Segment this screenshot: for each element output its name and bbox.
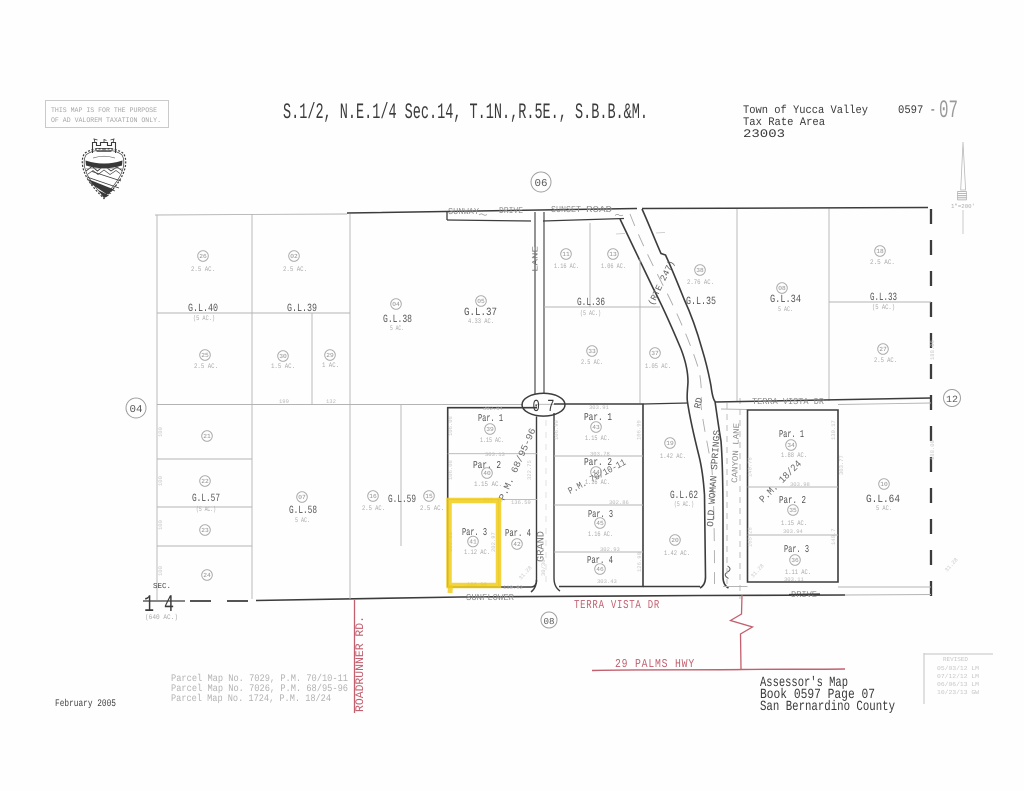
svg-text:106.99: 106.99	[636, 420, 643, 440]
svg-text:G.L.36: G.L.36	[577, 297, 605, 309]
svg-text:05: 05	[477, 298, 485, 305]
svg-text:1"=200': 1"=200'	[951, 203, 975, 210]
svg-text:5 AC.: 5 AC.	[390, 325, 404, 333]
svg-text:1.15 AC.: 1.15 AC.	[480, 437, 504, 445]
svg-text:2.5 AC.: 2.5 AC.	[362, 505, 385, 513]
svg-text:303.98: 303.98	[790, 481, 810, 488]
svg-text:34: 34	[787, 442, 795, 449]
svg-text:5 AC.: 5 AC.	[876, 505, 892, 513]
svg-text:1.15 AC.: 1.15 AC.	[781, 520, 807, 528]
svg-text:Par. 1: Par. 1	[779, 429, 804, 441]
svg-text:LANE: LANE	[532, 246, 541, 272]
svg-text:21: 21	[203, 433, 211, 440]
svg-text:2.5 AC.: 2.5 AC.	[283, 266, 307, 274]
svg-text:100: 100	[157, 520, 164, 530]
svg-text:07: 07	[298, 494, 306, 501]
svg-text:G.L.57: G.L.57	[192, 493, 220, 505]
svg-text:188.08: 188.08	[929, 340, 936, 360]
svg-text:100: 100	[157, 476, 164, 486]
svg-text:SEC.: SEC.	[153, 582, 171, 591]
svg-text:2.5 AC.: 2.5 AC.	[874, 357, 897, 365]
svg-text:46: 46	[596, 566, 604, 573]
svg-text:1.16 AC.: 1.16 AC.	[588, 531, 613, 539]
svg-text:132: 132	[326, 398, 336, 405]
svg-text:29 PALMS HWY: 29 PALMS HWY	[615, 657, 695, 671]
svg-text:35: 35	[789, 507, 797, 514]
svg-text:07: 07	[939, 96, 958, 125]
svg-text:(5 AC.): (5 AC.)	[196, 505, 216, 514]
svg-text:06/06/13 LM: 06/06/13 LM	[937, 681, 979, 688]
svg-text:100: 100	[157, 566, 164, 576]
svg-text:18: 18	[876, 248, 884, 255]
svg-text:1.15 AC.: 1.15 AC.	[474, 481, 502, 489]
svg-text:126.98: 126.98	[636, 552, 643, 572]
svg-text:43: 43	[592, 424, 600, 431]
svg-text:303.77: 303.77	[838, 455, 845, 475]
svg-text:303.91: 303.91	[589, 404, 610, 411]
svg-text:SUNFLOWER: SUNFLOWER	[466, 593, 515, 603]
svg-text:23003: 23003	[743, 128, 785, 141]
svg-text:12: 12	[946, 394, 958, 405]
svg-text:16: 16	[369, 493, 377, 500]
svg-text:100: 100	[157, 427, 164, 437]
svg-text:02: 02	[290, 253, 298, 260]
svg-text:04: 04	[130, 404, 143, 416]
svg-text:136.59: 136.59	[511, 499, 531, 506]
svg-text:188.08: 188.08	[929, 440, 936, 460]
svg-text:106.99: 106.99	[553, 420, 560, 440]
svg-text:08: 08	[544, 617, 555, 627]
svg-text:33: 33	[588, 348, 596, 355]
svg-text:26: 26	[199, 253, 207, 260]
svg-text:302.93: 302.93	[600, 546, 620, 553]
svg-text:THIS MAP IS FOR THE PURPOSE: THIS MAP IS FOR THE PURPOSE	[51, 107, 157, 115]
svg-text:G.L.35: G.L.35	[686, 296, 716, 308]
svg-text:G.L.40: G.L.40	[188, 303, 218, 315]
svg-text:5 AC.: 5 AC.	[295, 517, 310, 525]
svg-text:(640 AC.): (640 AC.)	[145, 613, 178, 622]
svg-text:27: 27	[879, 346, 887, 353]
svg-text:22: 22	[201, 478, 209, 485]
svg-text:110.92: 110.92	[503, 584, 523, 591]
svg-text:302.86: 302.86	[609, 499, 629, 506]
svg-text:G.L.34: G.L.34	[770, 294, 801, 306]
svg-text:2.5 AC.: 2.5 AC.	[581, 359, 603, 367]
svg-text:106.08: 106.08	[447, 416, 454, 436]
svg-text:2.76 AC.: 2.76 AC.	[687, 279, 714, 287]
svg-text:199: 199	[279, 398, 289, 405]
svg-text:SUNWAY: SUNWAY	[448, 207, 480, 217]
svg-text:1.42 AC.: 1.42 AC.	[664, 550, 690, 558]
svg-text:(5 AC.): (5 AC.)	[674, 500, 694, 509]
svg-text:G.L.58: G.L.58	[289, 505, 317, 517]
svg-text:30/30: 30/30	[540, 559, 547, 576]
svg-text:07/12/12 LM: 07/12/12 LM	[937, 673, 979, 680]
svg-text:1 AC.: 1 AC.	[322, 362, 339, 370]
svg-text:1.88 AC.: 1.88 AC.	[781, 452, 807, 460]
svg-text:36: 36	[791, 557, 799, 564]
svg-text:25: 25	[201, 352, 209, 359]
svg-text:2.5 AC.: 2.5 AC.	[191, 266, 215, 274]
svg-text:TERRA VISTA DR: TERRA VISTA DR	[574, 598, 660, 612]
svg-text:322.75: 322.75	[526, 460, 533, 480]
svg-text:5 AC.: 5 AC.	[778, 306, 793, 314]
svg-text:39: 39	[486, 426, 494, 433]
svg-text:ROAD: ROAD	[586, 205, 612, 215]
svg-text:15: 15	[425, 493, 433, 500]
svg-text:Par. 3: Par. 3	[462, 527, 487, 539]
svg-text:303.13: 303.13	[485, 451, 505, 458]
svg-text:130.17: 130.17	[830, 420, 837, 440]
svg-text:31.28: 31.28	[517, 564, 533, 581]
svg-text:G.L.33: G.L.33	[870, 292, 897, 304]
svg-text:04: 04	[392, 301, 400, 308]
svg-text:ROADRUNNER RD.: ROADRUNNER RD.	[354, 616, 367, 712]
svg-text:0 7: 0 7	[533, 398, 555, 417]
svg-text:140.78: 140.78	[747, 457, 754, 477]
svg-text:38: 38	[696, 267, 704, 274]
svg-text:302.04: 302.04	[483, 405, 504, 412]
svg-text:San Bernardino County: San Bernardino County	[760, 699, 895, 715]
svg-text:31.28: 31.28	[749, 562, 765, 579]
svg-text:G.L.59: G.L.59	[388, 494, 416, 506]
svg-text:OF AD VALOREM TAXATION ONLY.: OF AD VALOREM TAXATION ONLY.	[51, 117, 161, 125]
svg-text:S.1/2, N.E.1/4 Sec.14, T.1N.,R: S.1/2, N.E.1/4 Sec.14, T.1N.,R.5E., S.B.…	[283, 100, 648, 125]
svg-text:2.5 AC.: 2.5 AC.	[420, 505, 444, 513]
svg-text:(5 AC.): (5 AC.)	[193, 314, 215, 323]
svg-text:30: 30	[279, 353, 287, 360]
svg-text:11: 11	[562, 251, 570, 258]
svg-text:2.5 AC.: 2.5 AC.	[194, 363, 218, 371]
svg-text:1.15 AC.: 1.15 AC.	[585, 435, 610, 443]
svg-text:RD: RD	[692, 396, 705, 409]
svg-text:1.42 AC.: 1.42 AC.	[660, 453, 686, 461]
svg-text:31.28: 31.28	[943, 556, 959, 573]
svg-text:2.5 AC.: 2.5 AC.	[870, 259, 895, 267]
svg-text:06: 06	[535, 178, 548, 190]
svg-text:40: 40	[483, 470, 491, 477]
svg-text:23: 23	[201, 527, 209, 534]
svg-text:SUNSET: SUNSET	[551, 205, 582, 215]
svg-text:G.L.39: G.L.39	[287, 303, 317, 315]
svg-text:1.16 AC.: 1.16 AC.	[554, 263, 579, 271]
svg-text:37: 37	[651, 350, 659, 357]
svg-text:41: 41	[469, 539, 477, 546]
svg-text:106.08: 106.08	[447, 460, 454, 480]
svg-text:Parcel Map No. 1724, P.M. 18/2: Parcel Map No. 1724, P.M. 18/24	[171, 693, 331, 705]
svg-text:19: 19	[666, 440, 674, 447]
svg-text:165.28: 165.28	[747, 527, 754, 547]
svg-text:Par. 1: Par. 1	[478, 413, 503, 425]
svg-text:REVISED: REVISED	[943, 656, 968, 663]
svg-text:29: 29	[326, 352, 334, 359]
svg-text:1.06 AC.: 1.06 AC.	[601, 263, 626, 271]
svg-text:1.5 AC.: 1.5 AC.	[271, 363, 295, 371]
svg-text:05/03/12 LM: 05/03/12 LM	[937, 665, 979, 672]
svg-text:45: 45	[596, 520, 604, 527]
svg-text:Par. 4: Par. 4	[505, 528, 531, 540]
svg-text:Par. 3: Par. 3	[588, 509, 613, 521]
svg-text:DRIVE: DRIVE	[499, 206, 523, 216]
svg-text:20: 20	[671, 537, 679, 544]
svg-text:10/23/13 GW: 10/23/13 GW	[937, 689, 979, 696]
svg-text:303.94: 303.94	[783, 528, 804, 535]
svg-text:42: 42	[513, 541, 521, 548]
svg-text:1.05 AC.: 1.05 AC.	[645, 363, 671, 371]
svg-text:Par. 3: Par. 3	[784, 544, 809, 556]
svg-text:CANYON LANE: CANYON LANE	[730, 423, 742, 483]
svg-text:13: 13	[609, 251, 617, 258]
svg-text:303.43: 303.43	[597, 578, 617, 585]
svg-text:Par. 2: Par. 2	[779, 495, 806, 507]
svg-text:10: 10	[880, 481, 888, 488]
svg-text:February 2005: February 2005	[55, 698, 116, 710]
svg-text:Par. 4: Par. 4	[587, 555, 613, 567]
svg-text:148.7: 148.7	[830, 528, 837, 545]
svg-text:(5 AC.): (5 AC.)	[580, 309, 601, 318]
svg-text:08: 08	[778, 285, 786, 292]
svg-text:0597 -: 0597 -	[898, 104, 936, 117]
svg-text:4.33 AC.: 4.33 AC.	[468, 318, 494, 326]
svg-text:(5 AC.): (5 AC.)	[872, 303, 895, 312]
svg-text:TERRA VISTA DR: TERRA VISTA DR	[752, 397, 825, 407]
svg-text:GRAND: GRAND	[537, 531, 548, 562]
svg-text:1.12 AC.: 1.12 AC.	[464, 549, 490, 557]
svg-text:303.11: 303.11	[784, 576, 805, 583]
svg-text:303.78: 303.78	[590, 451, 610, 458]
svg-text:24: 24	[203, 572, 211, 579]
